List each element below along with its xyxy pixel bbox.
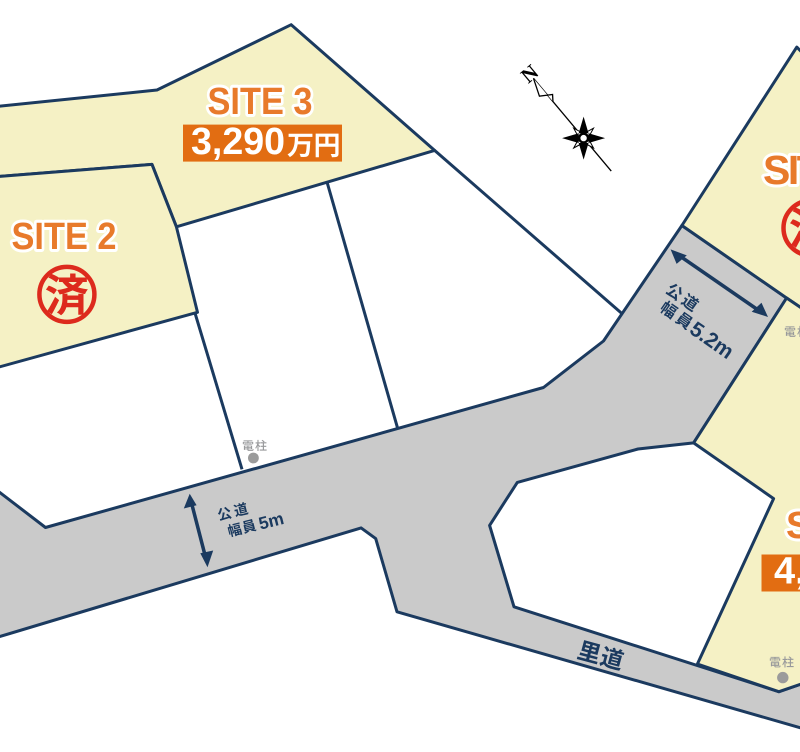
svg-text:SITE 3: SITE 3 [208, 81, 313, 123]
svg-text:4,180: 4,180 [774, 551, 800, 593]
svg-text:SITE 2: SITE 2 [12, 216, 117, 258]
svg-text:SITE 4: SITE 4 [786, 505, 800, 547]
svg-text:SITE 1: SITE 1 [763, 147, 800, 193]
svg-text:3,290: 3,290 [191, 121, 285, 163]
